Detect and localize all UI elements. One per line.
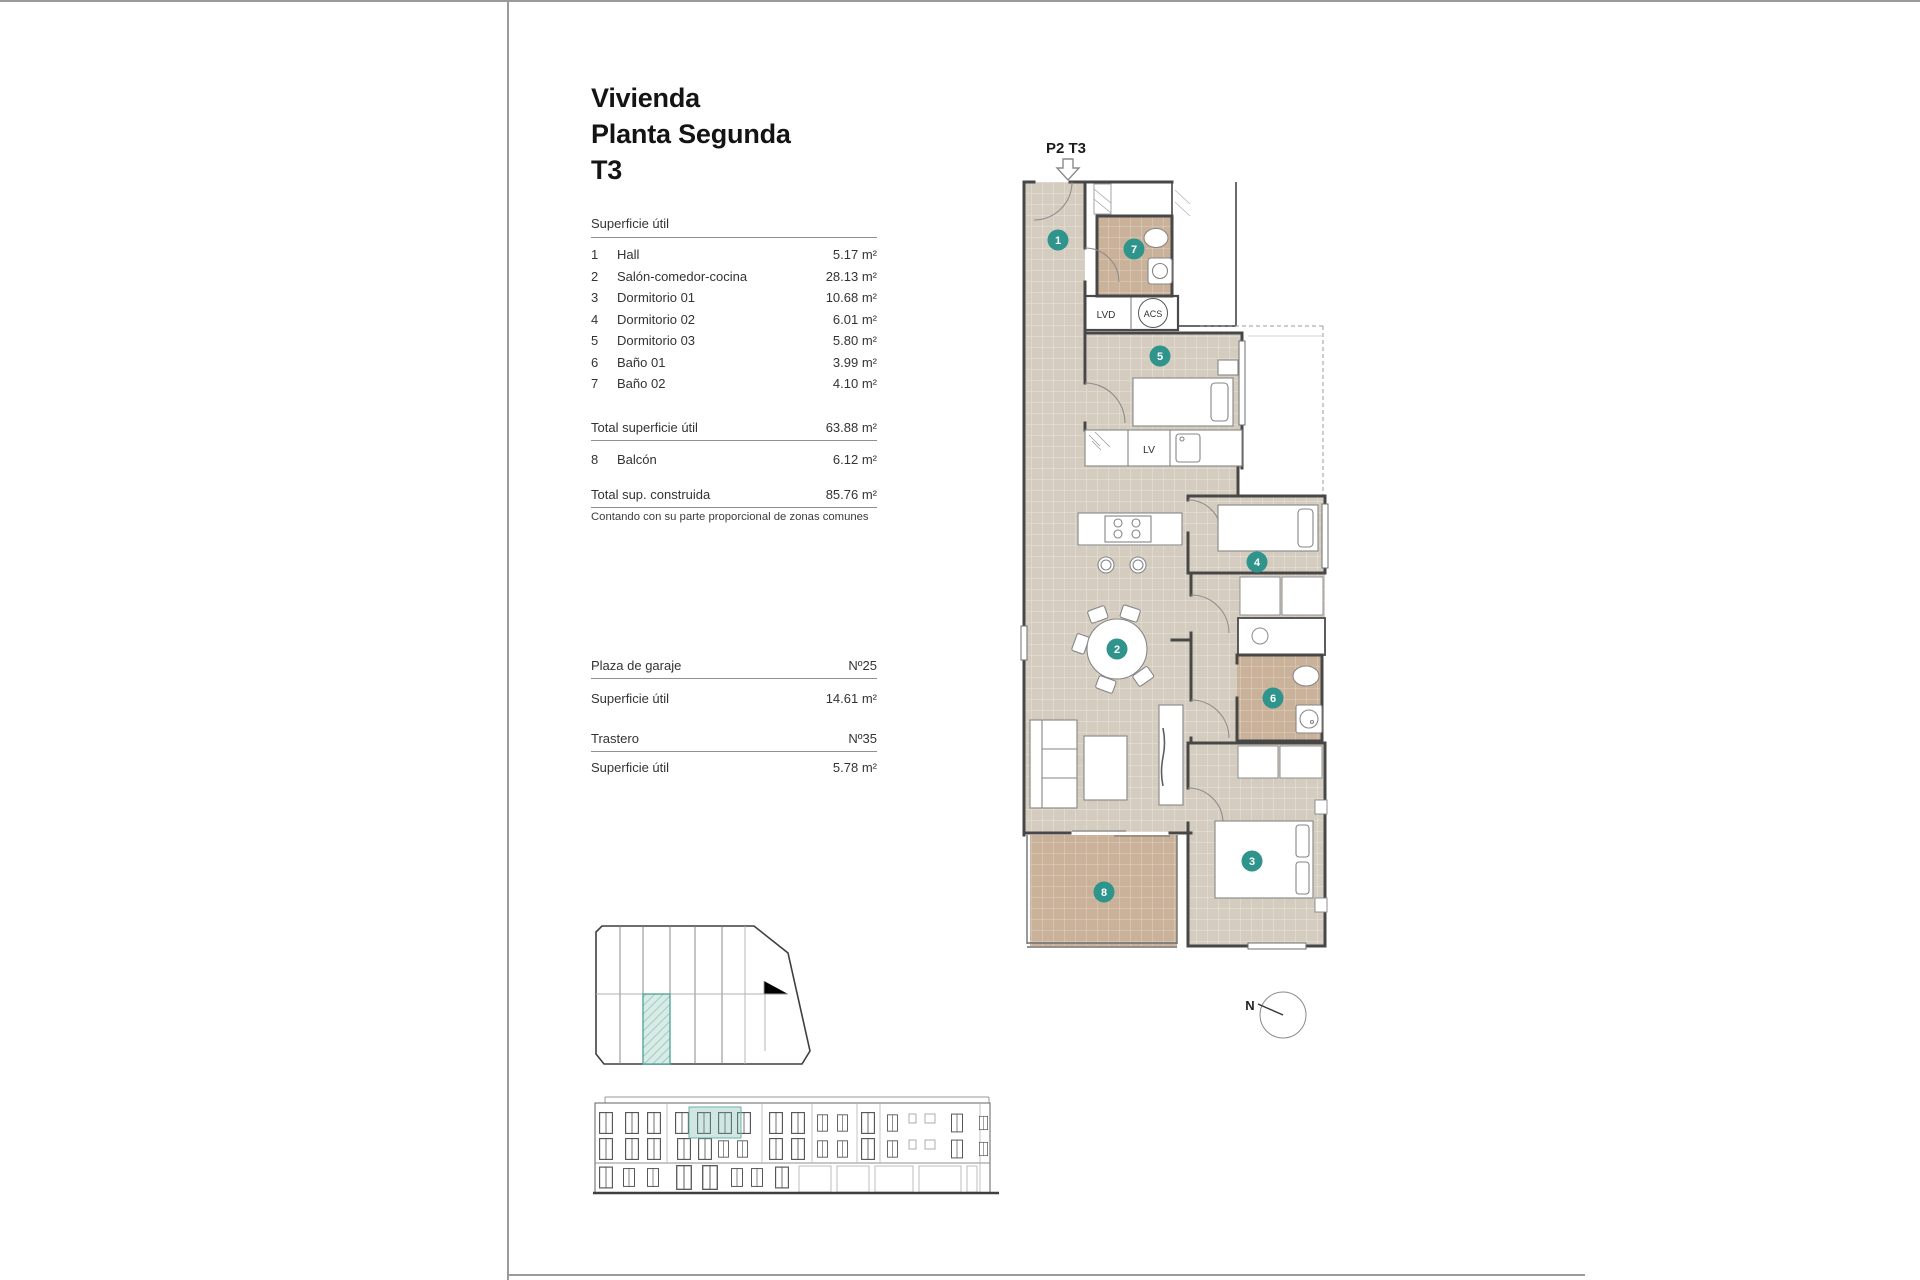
svg-text:8: 8	[1101, 887, 1107, 899]
table-row: 5Dormitorio 035.80 m²	[591, 330, 877, 352]
svg-text:1: 1	[1055, 235, 1061, 247]
svg-text:5: 5	[1157, 351, 1163, 363]
acs-label: ACS	[1144, 309, 1163, 319]
room-marker: 4	[1247, 552, 1268, 573]
storage-area-row: Superficie útil 5.78 m²	[591, 760, 877, 775]
storage-area-label: Superficie útil	[591, 760, 669, 775]
title-line-1: Vivienda	[591, 80, 791, 116]
garage-number: Nº25	[848, 658, 877, 673]
wardrobe-icon	[1240, 577, 1280, 615]
title-line-3: T3	[591, 152, 791, 188]
page-title: Vivienda Planta Segunda T3	[591, 80, 791, 188]
title-line-2: Planta Segunda	[591, 116, 791, 152]
common-zones-note: Contando con su parte proporcional de zo…	[591, 511, 911, 523]
sofa-icon	[1030, 720, 1077, 808]
built-value: 85.76 m²	[826, 487, 877, 502]
room-marker: 2	[1107, 639, 1128, 660]
highlighted-unit	[643, 994, 670, 1064]
wardrobe-icon	[1282, 577, 1323, 615]
compass: N	[1245, 992, 1306, 1038]
vanity-area	[1238, 618, 1325, 655]
garage-area-row: Superficie útil 14.61 m²	[591, 691, 877, 706]
svg-text:6: 6	[1270, 693, 1276, 705]
total-built-area-row: Total sup. construida 85.76 m²	[591, 487, 877, 508]
lv-label: LV	[1143, 444, 1155, 456]
storage-row: Trastero Nº35	[591, 731, 877, 752]
roof-line	[605, 1097, 989, 1103]
room-marker: 8	[1094, 882, 1115, 903]
floor-plan-drawing: P2 T3	[1010, 128, 1340, 1048]
storage-label: Trastero	[591, 731, 639, 746]
building-key-plan	[588, 916, 823, 1071]
entry-arrow-icon	[1057, 159, 1079, 180]
room-marker: 5	[1150, 346, 1171, 367]
wardrobe-icon	[1280, 746, 1322, 778]
surface-table-rows: 1Hall5.17 m² 2Salón-comedor-cocina28.13 …	[591, 244, 877, 395]
coffee-table-icon	[1084, 736, 1127, 800]
building-outline	[596, 926, 810, 1064]
compass-n-label: N	[1245, 998, 1254, 1013]
svg-text:2: 2	[1114, 644, 1120, 656]
table-row: 7Baño 024.10 m²	[591, 373, 877, 395]
room-marker: 6	[1263, 688, 1284, 709]
unit-label: P2 T3	[1046, 140, 1086, 157]
highlighted-window	[689, 1107, 741, 1138]
table-row: 4Dormitorio 026.01 m²	[591, 309, 877, 331]
svg-text:7: 7	[1131, 244, 1137, 256]
garage-area-value: 14.61 m²	[826, 691, 877, 706]
svg-text:3: 3	[1249, 856, 1255, 868]
floor-plan-sheet: { "title": { "lines": ["Vivienda", "Plan…	[0, 0, 1920, 1280]
balcony-row: 8Balcón6.12 m²	[591, 449, 877, 471]
total-value: 63.88 m²	[826, 420, 877, 435]
vanity-sink-icon	[1252, 628, 1268, 644]
room-marker: 7	[1124, 239, 1145, 260]
wardrobe-icon	[1238, 746, 1278, 778]
neighbour-walls	[1172, 182, 1236, 326]
room-marker: 3	[1242, 851, 1263, 872]
svg-text:4: 4	[1254, 557, 1261, 569]
surface-table-header: Superficie útil	[591, 216, 877, 238]
surface-table-title: Superficie útil	[591, 216, 877, 238]
garage-row: Plaza de garaje Nº25	[591, 658, 877, 679]
built-label: Total sup. construida	[591, 487, 710, 502]
page-border-bottom	[507, 1274, 1585, 1276]
garage-area-label: Superficie útil	[591, 691, 669, 706]
page-border-top	[0, 0, 1920, 2]
shaft-hatch	[1094, 184, 1111, 214]
hob-icon	[1105, 516, 1151, 542]
toilet-icon	[1293, 666, 1319, 686]
table-row: 1Hall5.17 m²	[591, 244, 877, 266]
total-label: Total superficie útil	[591, 420, 698, 435]
page-border-left	[507, 0, 509, 1280]
toilet-icon	[1144, 229, 1168, 248]
kitchen-counter	[1085, 430, 1242, 466]
table-row: 2Salón-comedor-cocina28.13 m²	[591, 266, 877, 288]
total-useful-area-row: Total superficie útil 63.88 m²	[591, 420, 877, 441]
garage-label: Plaza de garaje	[591, 658, 681, 673]
storage-area-value: 5.78 m²	[833, 760, 877, 775]
table-row: 6Baño 013.99 m²	[591, 352, 877, 374]
nightstand-icon	[1218, 360, 1238, 375]
facade-elevation	[585, 1085, 1010, 1215]
room-marker: 1	[1048, 230, 1069, 251]
storage-number: Nº35	[848, 731, 877, 746]
table-row: 3Dormitorio 0110.68 m²	[591, 287, 877, 309]
lvd-label: LVD	[1097, 310, 1116, 321]
